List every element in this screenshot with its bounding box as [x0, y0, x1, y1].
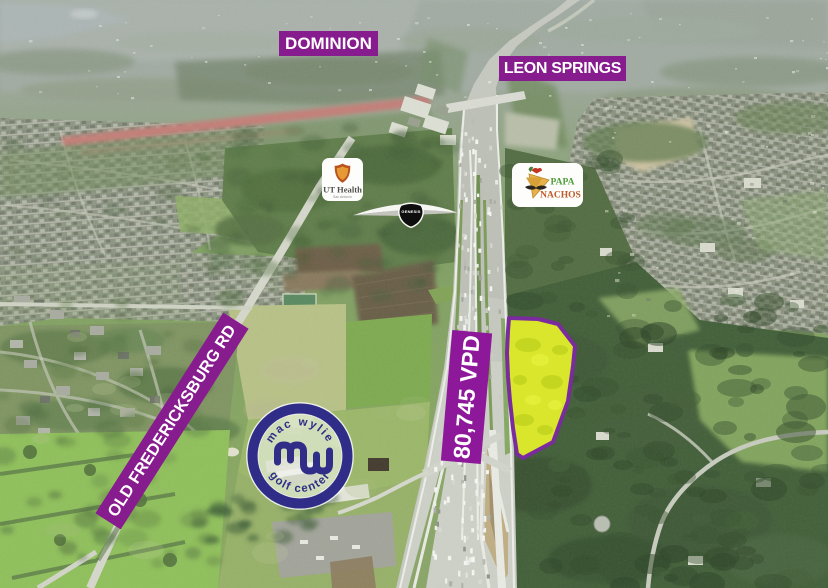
svg-text:NACHOS: NACHOS [540, 191, 581, 201]
svg-text:GENESIS: GENESIS [401, 209, 420, 214]
svg-text:UT Health: UT Health [323, 185, 362, 195]
svg-text:San Antonio: San Antonio [333, 195, 352, 199]
svg-text:PAPA: PAPA [551, 178, 575, 188]
